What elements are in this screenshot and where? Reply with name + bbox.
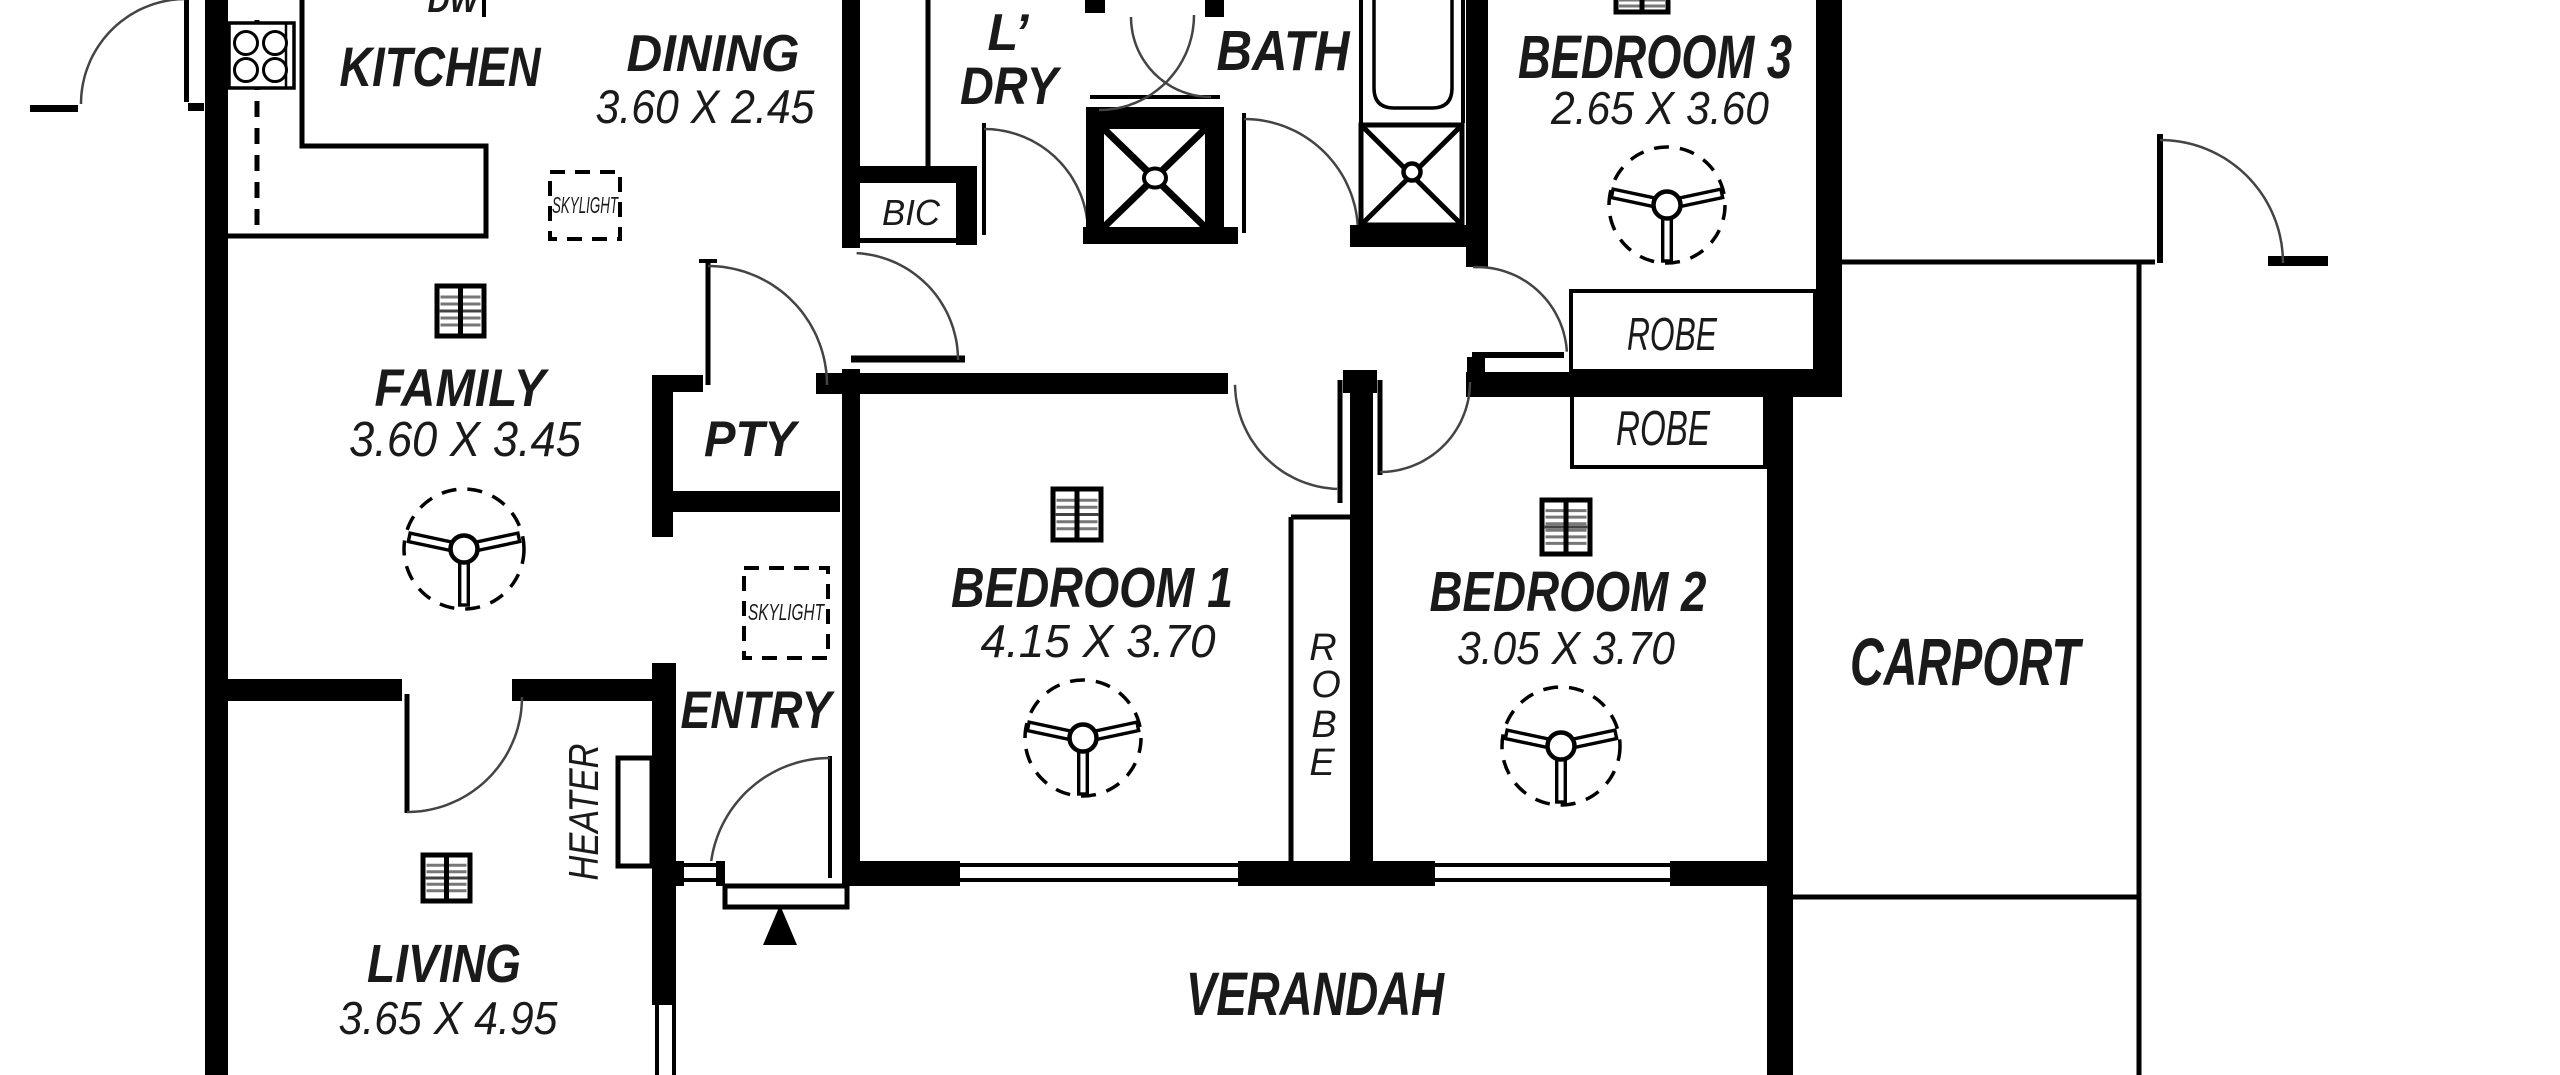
svg-text:FAMILY: FAMILY [375, 359, 550, 418]
svg-text:BEDROOM 2: BEDROOM 2 [1430, 560, 1707, 624]
svg-text:PTY: PTY [704, 411, 800, 467]
svg-text:SKYLIGHT: SKYLIGHT [552, 192, 619, 218]
svg-text:CARPORT: CARPORT [1850, 625, 2084, 700]
svg-text:KITCHEN: KITCHEN [340, 35, 542, 98]
svg-text:BIC: BIC [882, 192, 941, 233]
svg-text:3.65 X 4.95: 3.65 X 4.95 [339, 992, 558, 1044]
svg-text:SKYLIGHT: SKYLIGHT [748, 599, 825, 625]
svg-text:2.65 X 3.60: 2.65 X 3.60 [1550, 82, 1769, 134]
svg-text:VERANDAH: VERANDAH [1186, 960, 1445, 1028]
svg-text:BATH: BATH [1217, 19, 1352, 83]
svg-text:LIVING: LIVING [367, 934, 521, 994]
svg-text:BEDROOM 1: BEDROOM 1 [951, 556, 1233, 620]
svg-text:R: R [1309, 627, 1336, 669]
svg-text:DINING: DINING [627, 25, 800, 83]
svg-text:4.15 X 3.70: 4.15 X 3.70 [981, 615, 1216, 667]
svg-text:ENTRY: ENTRY [681, 681, 836, 740]
svg-text:ROBE: ROBE [1616, 402, 1711, 456]
svg-text:HEATER: HEATER [560, 744, 607, 881]
svg-text:ROBE: ROBE [1627, 308, 1718, 360]
svg-text:3.60 X 2.45: 3.60 X 2.45 [596, 80, 816, 133]
svg-text:B: B [1311, 704, 1336, 746]
svg-text:O: O [1311, 664, 1341, 706]
svg-text:3.05 X 3.70: 3.05 X 3.70 [1457, 622, 1675, 674]
svg-text:DW: DW [428, 0, 482, 20]
svg-text:DRY: DRY [960, 57, 1062, 116]
svg-text:E: E [1309, 742, 1335, 784]
svg-text:L’: L’ [988, 4, 1030, 62]
svg-text:3.60 X 3.45: 3.60 X 3.45 [349, 413, 582, 467]
svg-text:BEDROOM 3: BEDROOM 3 [1518, 23, 1792, 91]
